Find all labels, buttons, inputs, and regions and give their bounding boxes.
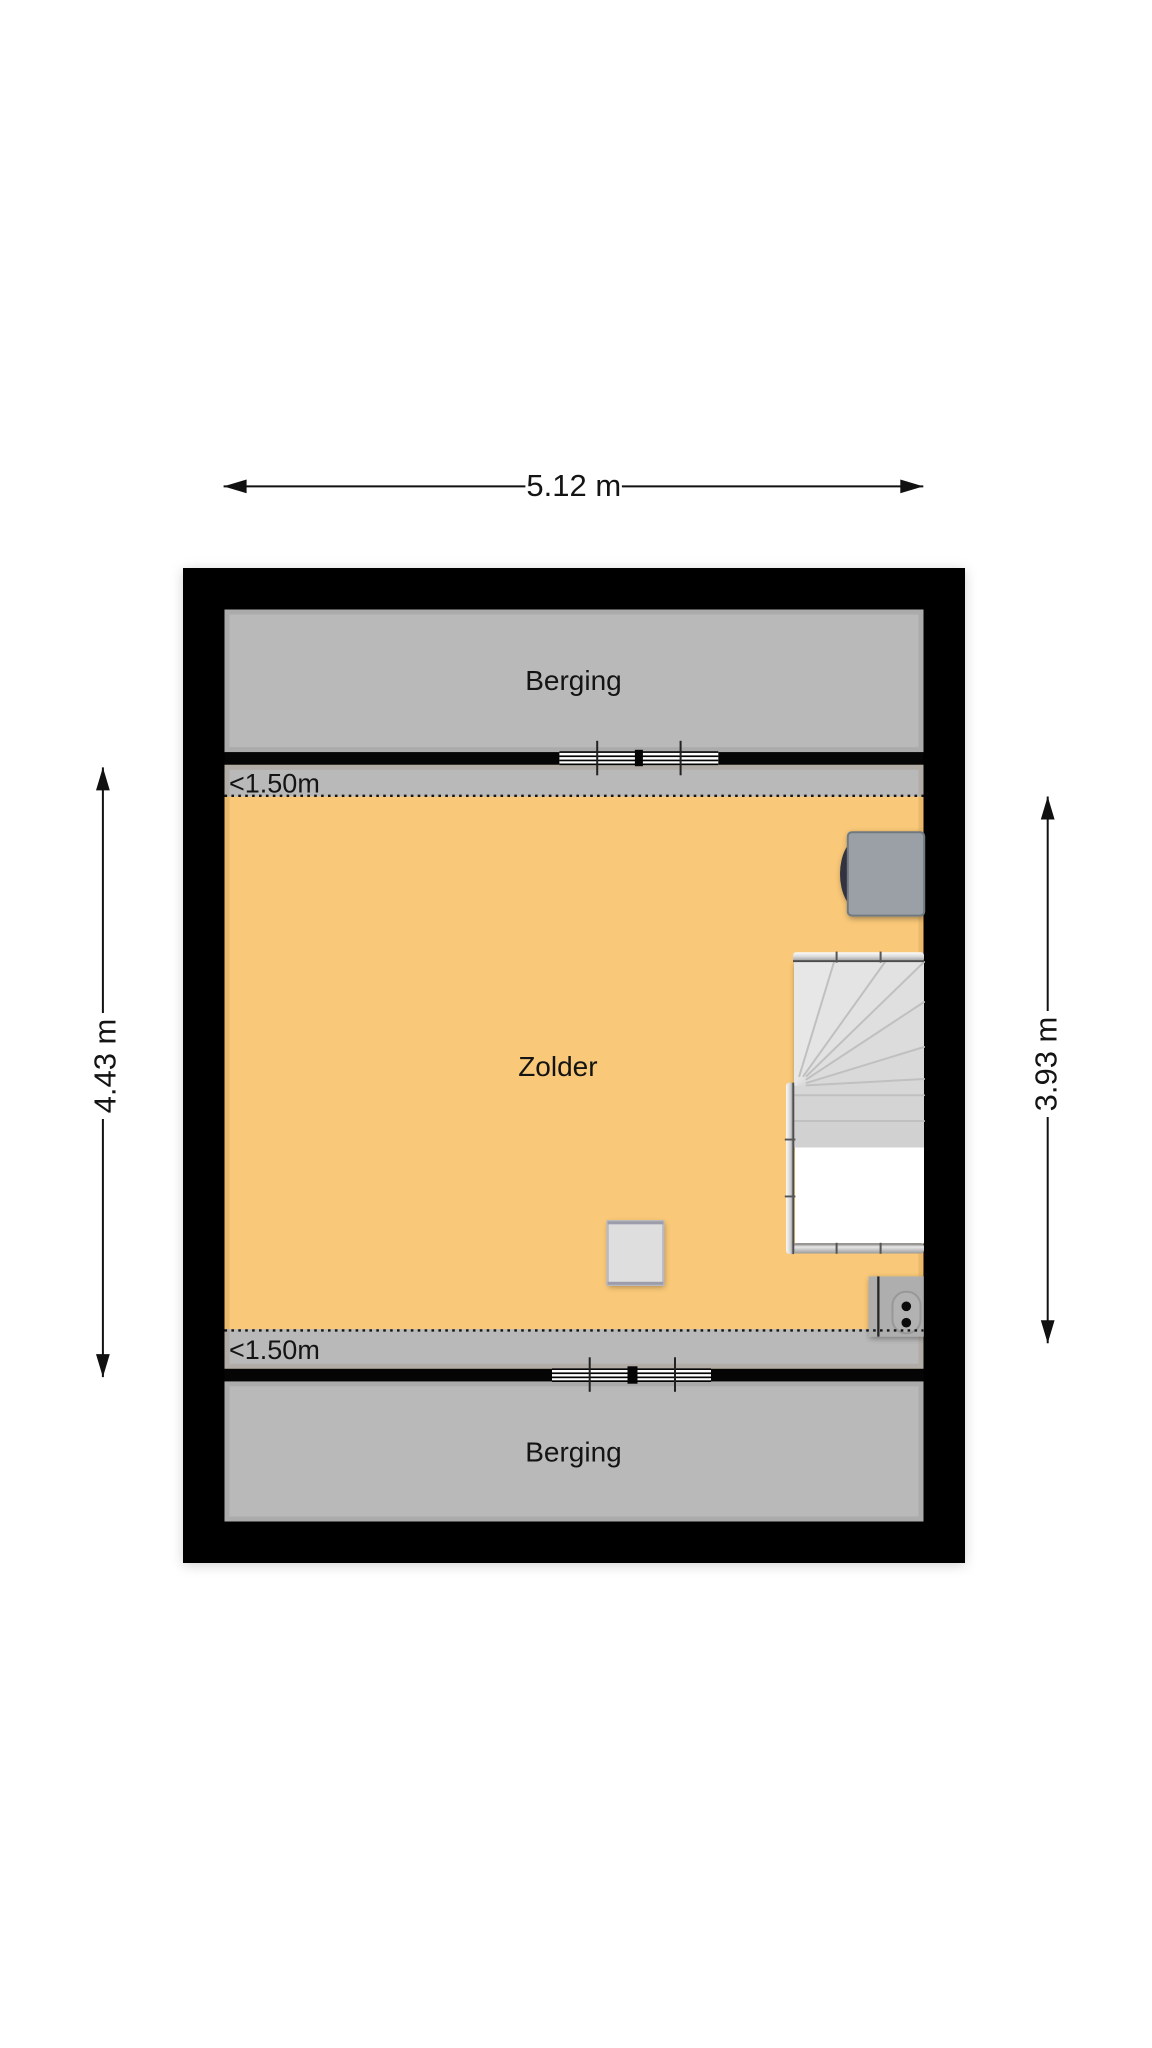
svg-text:Berging: Berging: [525, 1437, 622, 1468]
svg-text:<1.50m: <1.50m: [229, 768, 320, 798]
svg-text:Zolder: Zolder: [518, 1051, 597, 1082]
svg-text:4.43 m: 4.43 m: [88, 1019, 123, 1114]
svg-text:Berging: Berging: [525, 665, 622, 696]
svg-text:<1.50m: <1.50m: [229, 1335, 320, 1365]
svg-text:3.93 m: 3.93 m: [1029, 1017, 1064, 1112]
svg-text:5.12 m: 5.12 m: [526, 468, 621, 503]
